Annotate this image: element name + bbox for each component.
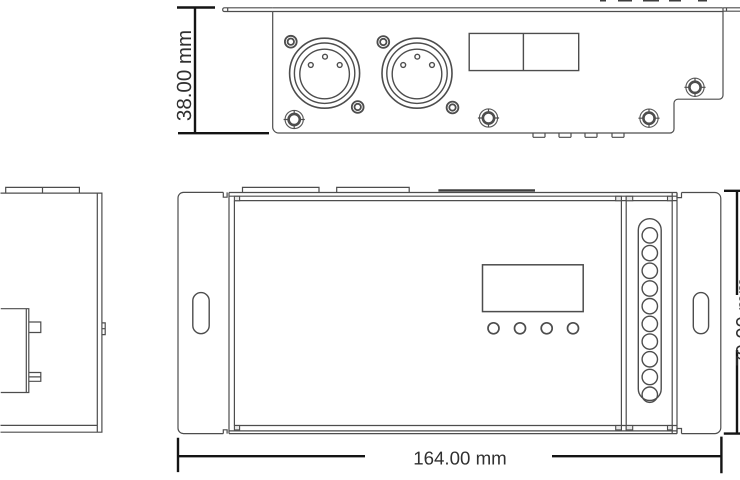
svg-text:70.00 mm: 70.00 mm [733, 278, 740, 367]
svg-text:164.00 mm: 164.00 mm [413, 448, 506, 469]
svg-text:38.00 mm: 38.00 mm [173, 30, 196, 121]
